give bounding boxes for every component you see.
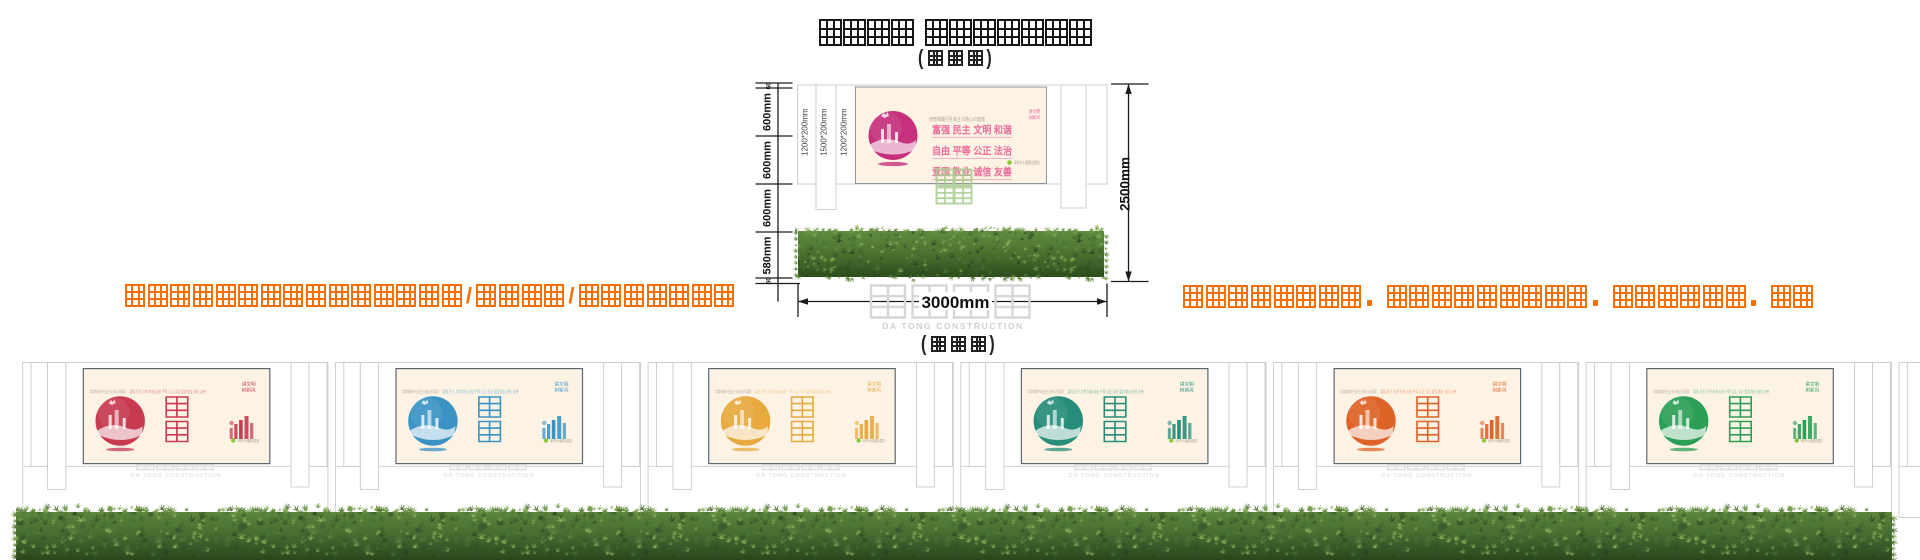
svg-text:深圳市大通建设围挡: 深圳市大通建设围挡: [1014, 160, 1040, 165]
svg-text:60: 60: [766, 277, 773, 285]
svg-text:DA TONG CONSTRUCTION: DA TONG CONSTRUCTION: [756, 473, 847, 479]
svg-text:DA TONG CONSTRUCTION: DA TONG CONSTRUCTION: [1381, 473, 1472, 479]
svg-text:600mm: 600mm: [762, 189, 774, 227]
svg-text:DA TONG CONSTRUCTION: DA TONG CONSTRUCTION: [882, 321, 1024, 331]
svg-text:1500*200mm: 1500*200mm: [820, 108, 829, 156]
svg-text:600mm: 600mm: [762, 141, 774, 179]
svg-text:讲文明: 讲文明: [1029, 108, 1040, 115]
svg-text:3000mm: 3000mm: [921, 293, 989, 312]
svg-text:580mm: 580mm: [762, 236, 774, 274]
svg-text:600mm: 600mm: [762, 93, 774, 131]
svg-text:DA TONG CONSTRUCTION: DA TONG CONSTRUCTION: [1694, 473, 1785, 479]
svg-text:DA TONG CONSTRUCTION: DA TONG CONSTRUCTION: [443, 473, 534, 479]
svg-text:DA TONG CONSTRUCTION: DA TONG CONSTRUCTION: [131, 473, 222, 479]
svg-text:DA TONG CONSTRUCTION: DA TONG CONSTRUCTION: [1069, 473, 1160, 479]
svg-text:1200*200mm: 1200*200mm: [801, 108, 810, 156]
svg-text:富强 民主 文明 和谐: 富强 民主 文明 和谐: [932, 124, 1012, 137]
svg-text:自由 平等 公正 法治: 自由 平等 公正 法治: [932, 145, 1012, 158]
svg-text:60: 60: [766, 82, 773, 90]
svg-text:培育和践行社会主义核心价值观: 培育和践行社会主义核心价值观: [929, 116, 985, 123]
svg-text:树新风: 树新风: [1029, 114, 1040, 121]
svg-text:1200*200mm: 1200*200mm: [840, 108, 849, 156]
svg-text:2500mm: 2500mm: [1118, 157, 1133, 211]
